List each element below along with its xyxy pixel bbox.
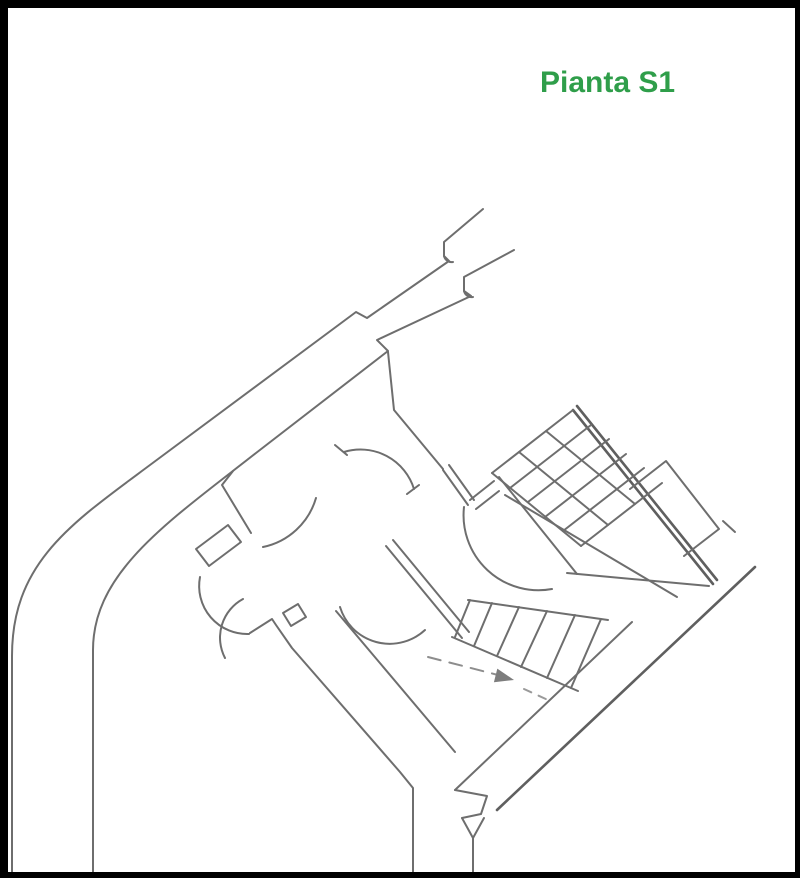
frame-border-left: [0, 0, 8, 878]
frame-border-right: [795, 0, 800, 878]
door-jamb-block: [196, 525, 241, 566]
double-swing-door: [196, 498, 316, 658]
door-leaf-arc: [263, 498, 316, 547]
stair-tread: [497, 607, 519, 656]
door-jamb-block: [283, 604, 306, 626]
door-arc: [464, 507, 552, 590]
stair-stringer: [452, 637, 578, 691]
stair-stringer: [546, 431, 635, 504]
staircase-upper-flight: [492, 406, 717, 597]
west-corridor-walls: [12, 209, 514, 874]
wall-v-joint: [462, 818, 484, 838]
corridor-wall-inner: [93, 250, 514, 874]
se-wall-outer: [497, 567, 755, 810]
stair-direction-line: [428, 657, 498, 675]
stair-rail-line: [499, 477, 577, 574]
floor-plan-page: Pianta S1: [0, 0, 800, 878]
corridor-wall-outer: [12, 209, 483, 874]
wall-bridge-to-stairs: [470, 481, 499, 509]
wall-notch: [455, 790, 487, 818]
door-arc: [344, 450, 414, 489]
stair-stringer: [519, 452, 608, 525]
stair-direction-line: [524, 689, 548, 700]
stair-tread: [547, 615, 575, 678]
frame-border-top: [0, 0, 800, 8]
stair-tread: [474, 603, 492, 646]
floor-plan-drawing: [0, 0, 800, 878]
east-shaft-stub: [630, 461, 735, 556]
central-hall-walls: [222, 352, 552, 644]
wall-notch-tick: [444, 256, 453, 262]
stair-tread: [521, 611, 547, 667]
stair-arrow-head: [494, 669, 514, 683]
partition-wall-double: [386, 540, 469, 638]
exit-corridor-left-wall: [250, 619, 413, 874]
exit-corridor-right-wall: [336, 611, 455, 752]
page-title: Pianta S1: [540, 66, 675, 100]
hall-north-east-wall: [388, 352, 443, 469]
door-arc: [340, 607, 425, 644]
frame-border-bottom: [0, 872, 800, 878]
shaft-outline: [630, 461, 719, 556]
south-east-walls: [250, 567, 755, 874]
hall-west-wall: [222, 471, 251, 533]
stair-tread: [571, 619, 601, 688]
door-leaf-arc: [199, 577, 249, 634]
door-jamb-wall-double: [443, 465, 474, 505]
shaft-tick: [723, 521, 735, 532]
